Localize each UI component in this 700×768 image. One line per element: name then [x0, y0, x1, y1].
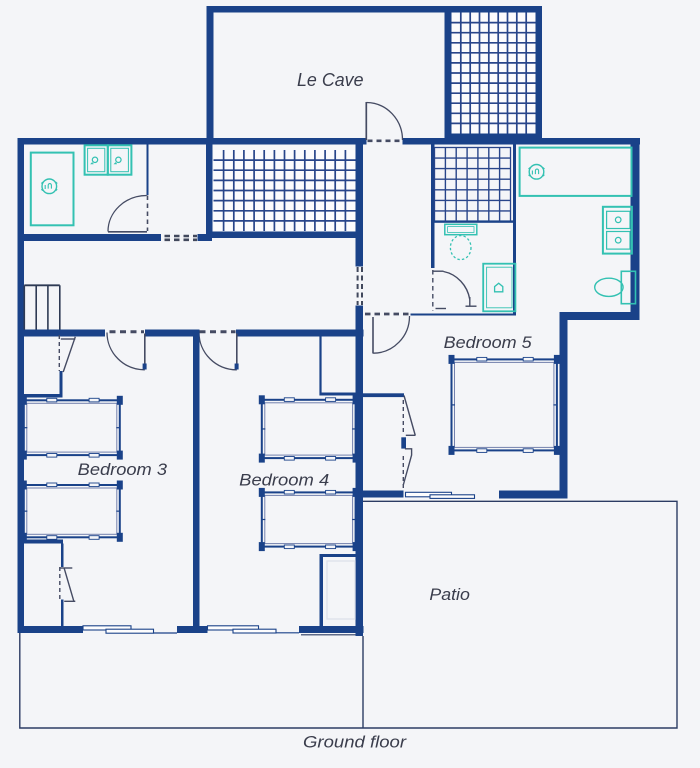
svg-text:Le Cave: Le Cave — [297, 70, 364, 90]
svg-text:Bedroom 4: Bedroom 4 — [239, 471, 329, 490]
svg-text:Bedroom 3: Bedroom 3 — [78, 460, 168, 479]
svg-text:Bedroom 5: Bedroom 5 — [444, 333, 533, 352]
svg-text:Ground floor: Ground floor — [303, 733, 407, 752]
svg-text:Patio: Patio — [429, 585, 470, 604]
